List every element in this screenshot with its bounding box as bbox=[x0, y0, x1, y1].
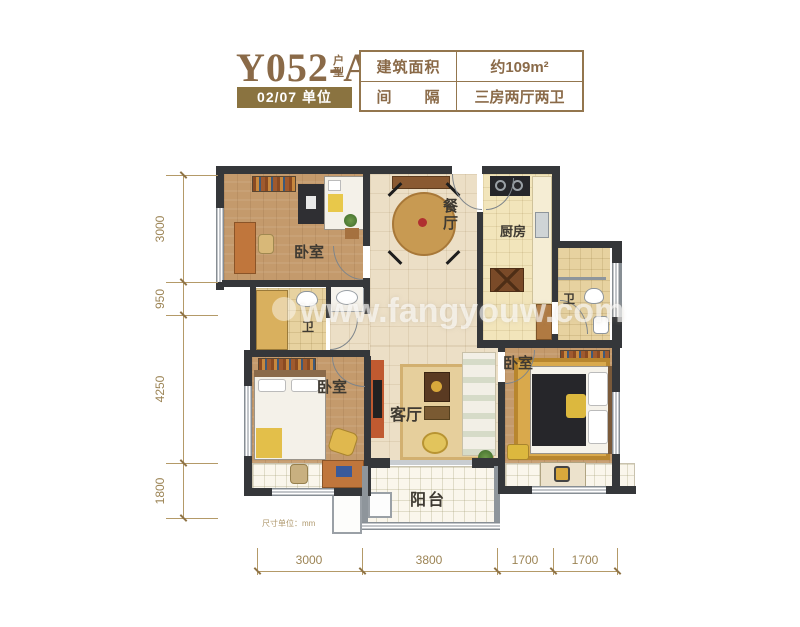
desk bbox=[234, 222, 256, 274]
room-label-kitchen: 厨房 bbox=[500, 221, 526, 240]
wall bbox=[250, 287, 256, 356]
table-decor bbox=[431, 381, 442, 392]
unit-note: 尺寸单位：mm bbox=[262, 518, 315, 529]
table-centerpiece bbox=[418, 218, 427, 227]
shower-divider bbox=[558, 277, 606, 280]
dim-label: 1800 bbox=[153, 461, 167, 521]
wall bbox=[244, 488, 272, 496]
window bbox=[272, 488, 334, 496]
dim-label: 3800 bbox=[399, 553, 459, 567]
plan-title-suffix: 户型 bbox=[333, 55, 345, 79]
wall bbox=[246, 350, 334, 357]
dim-label: 1700 bbox=[555, 553, 615, 567]
info-row-area: 建筑面积 约109m² bbox=[361, 52, 582, 81]
wall bbox=[222, 280, 370, 287]
wall bbox=[552, 334, 558, 342]
wall bbox=[612, 454, 620, 494]
blanket-yellow bbox=[256, 428, 282, 458]
window bbox=[532, 486, 606, 494]
kitchen-counter bbox=[532, 176, 552, 304]
wall bbox=[606, 486, 636, 494]
plan-title: Y052-A bbox=[236, 48, 373, 88]
plant bbox=[344, 214, 357, 227]
wardrobe-door bbox=[306, 196, 316, 209]
pillow bbox=[291, 379, 319, 392]
blanket-yellow bbox=[328, 194, 343, 212]
room-label-bedroom-top-left: 卧室 bbox=[294, 241, 324, 262]
watermark-logo bbox=[272, 297, 296, 321]
wall bbox=[244, 350, 252, 386]
pillow bbox=[258, 379, 286, 392]
wall bbox=[498, 486, 532, 494]
bookshelf bbox=[252, 176, 296, 192]
dim-label: 3000 bbox=[279, 553, 339, 567]
dim-ext bbox=[166, 463, 218, 464]
dim-ext bbox=[166, 518, 218, 519]
dim-label: 950 bbox=[153, 269, 167, 329]
wall bbox=[498, 340, 505, 352]
dim-line-left bbox=[183, 175, 184, 518]
info-row-layout: 间 隔 三房两厅两卫 bbox=[361, 81, 582, 110]
window bbox=[216, 208, 224, 282]
headboard bbox=[254, 370, 326, 377]
dim-ext bbox=[166, 282, 218, 283]
info-label-area: 建筑面积 bbox=[361, 52, 457, 81]
window bbox=[244, 386, 252, 456]
wall-top bbox=[218, 166, 452, 174]
nightstand bbox=[345, 228, 359, 239]
sofa bbox=[462, 352, 496, 456]
desk-chair bbox=[258, 234, 274, 254]
wall bbox=[612, 348, 620, 392]
laptop bbox=[336, 466, 352, 477]
pillow bbox=[588, 372, 608, 406]
balcony-threshold bbox=[390, 460, 472, 465]
bench bbox=[507, 444, 529, 460]
bay-chair bbox=[290, 464, 308, 484]
wall bbox=[363, 174, 370, 246]
dim-label: 4250 bbox=[153, 359, 167, 419]
wall-top bbox=[482, 166, 560, 174]
ottoman bbox=[422, 432, 448, 454]
info-value-area: 约109m² bbox=[457, 52, 582, 81]
room-label-bedroom-right: 卧室 bbox=[503, 352, 533, 373]
dim-ext bbox=[166, 175, 218, 176]
kitchen-island bbox=[490, 268, 524, 292]
room-label-bedroom-bottom-left: 卧室 bbox=[317, 376, 347, 397]
ac-platform bbox=[332, 494, 362, 534]
room-label-dining: 餐厅 bbox=[443, 198, 459, 232]
info-value-layout: 三房两厅两卫 bbox=[457, 82, 582, 110]
unit-badge: 02/07 单位 bbox=[237, 87, 352, 108]
floorplan-page: Y052-A 户型 02/07 单位 建筑面积 约109m² 间 隔 三房两厅两… bbox=[0, 0, 800, 627]
wall bbox=[498, 382, 505, 490]
info-label-layout: 间 隔 bbox=[361, 82, 457, 110]
dim-label: 3000 bbox=[153, 199, 167, 259]
bay-chair bbox=[554, 466, 570, 482]
cushion-yellow bbox=[566, 394, 586, 418]
watermark-text: www.fangyouw.com bbox=[300, 292, 624, 331]
balcony-wall bbox=[362, 466, 368, 528]
room-label-living: 客厅 bbox=[390, 401, 422, 425]
room-label-balcony: 阳台 bbox=[410, 486, 446, 510]
wall bbox=[612, 241, 622, 263]
kitchen-sink bbox=[535, 212, 549, 238]
info-table: 建筑面积 约109m² 间 隔 三房两厅两卫 bbox=[359, 50, 584, 112]
pillow bbox=[328, 180, 341, 191]
pillow bbox=[588, 410, 608, 444]
dim-ext bbox=[166, 315, 218, 316]
balcony-railing bbox=[362, 522, 500, 530]
wall-kitchen-right bbox=[552, 166, 560, 246]
window bbox=[612, 392, 620, 454]
tea-tray bbox=[424, 406, 450, 420]
tv bbox=[373, 380, 382, 418]
washing-machine bbox=[368, 492, 392, 518]
dim-label: 1700 bbox=[495, 553, 555, 567]
dim-line-bottom bbox=[257, 571, 617, 572]
